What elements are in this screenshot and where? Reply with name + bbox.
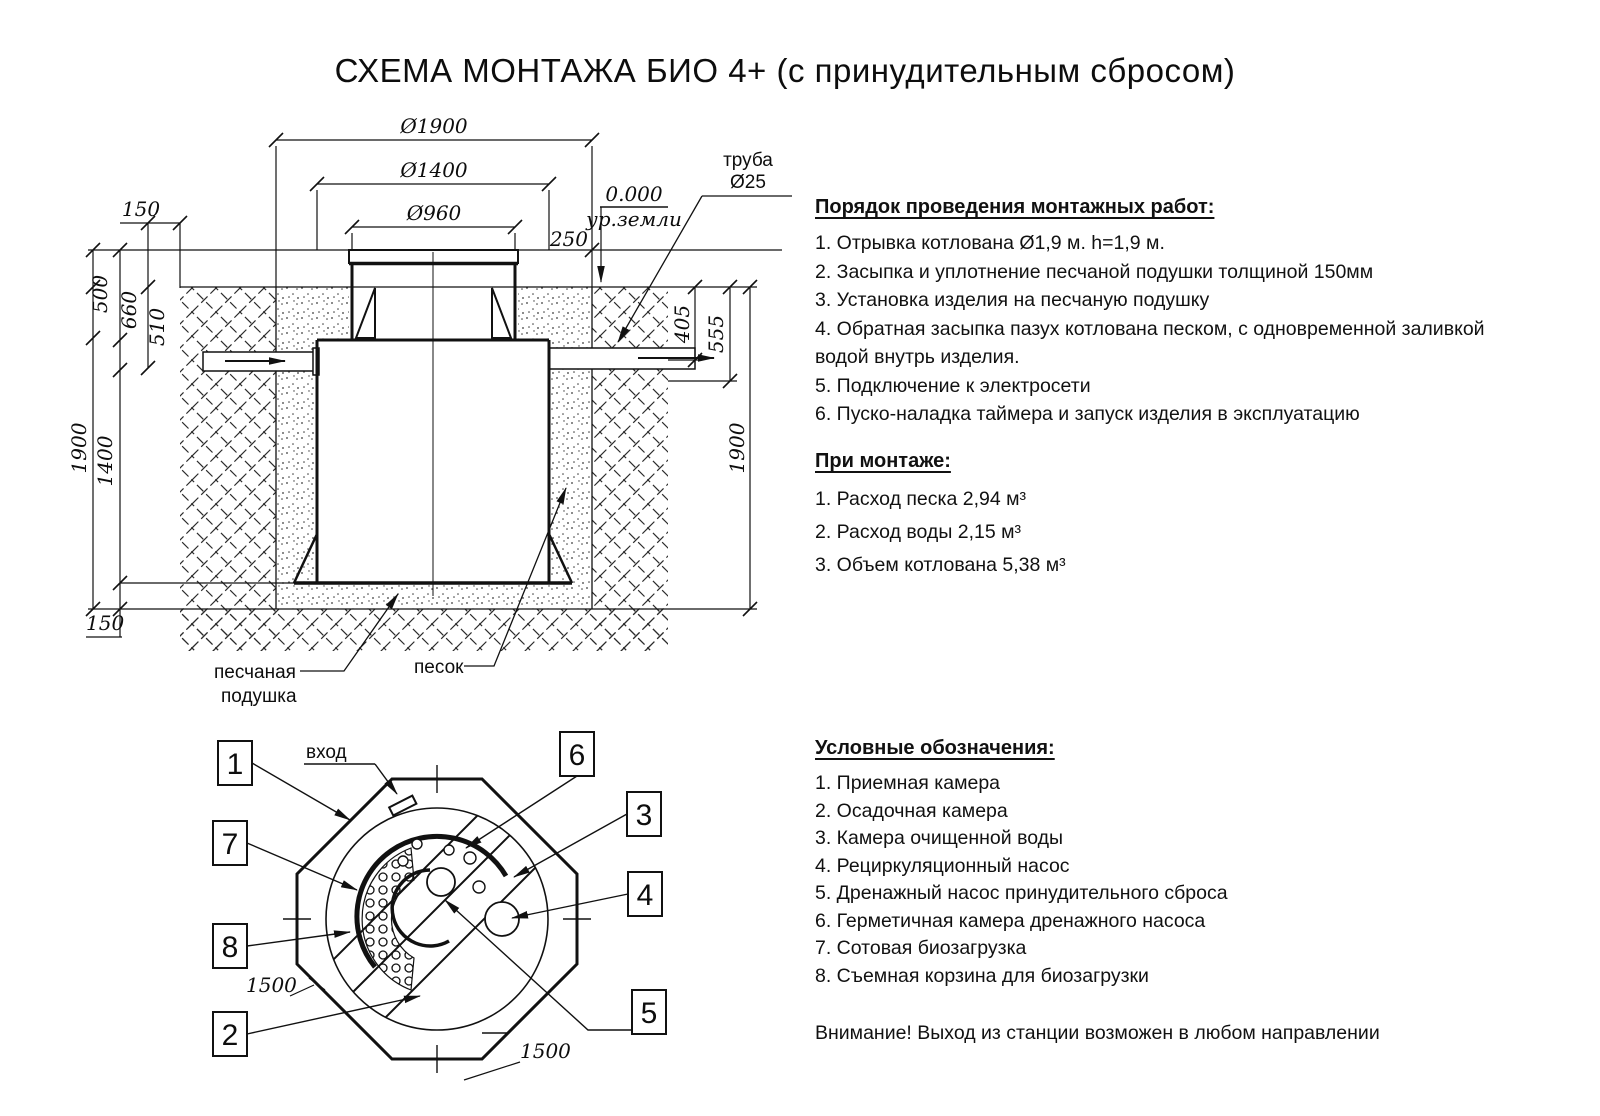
ground-level-label: ур.земли bbox=[585, 207, 682, 231]
procedure-section: Порядок проведения монтажных работ: 1. О… bbox=[815, 196, 1510, 429]
dim-250: 250 bbox=[549, 227, 588, 251]
callout-6-number: 6 bbox=[569, 739, 586, 772]
level-zero-label: 0.000 bbox=[605, 182, 663, 206]
sand-cushion-label-line1: песчаная bbox=[214, 662, 296, 683]
ground-level-marker: 0.000 ур.земли bbox=[585, 182, 682, 282]
legend-item: 1. Приемная камера bbox=[815, 770, 1510, 798]
procedure-item: 2. Засыпка и уплотнение песчаной подушки… bbox=[815, 258, 1510, 287]
callout-4: 4 bbox=[628, 872, 662, 916]
callout-7: 7 bbox=[213, 821, 247, 865]
callout-1-number: 1 bbox=[227, 748, 244, 781]
callout-5-number: 5 bbox=[641, 997, 658, 1030]
sand-cushion-label-line2: подушка bbox=[221, 686, 297, 707]
dim-150-top: 150 bbox=[122, 197, 160, 221]
callout-3-number: 3 bbox=[636, 799, 653, 832]
dim-405: 405 bbox=[670, 305, 694, 344]
dim-660: 660 bbox=[117, 291, 141, 329]
dim-d1400: Ø1400 bbox=[399, 158, 468, 182]
legend-item: 5. Дренажный насос принудительного сброс… bbox=[815, 880, 1510, 908]
installation-heading: При монтаже: bbox=[815, 450, 1510, 473]
dim-1400-left: 1400 bbox=[93, 435, 117, 486]
installation-section: При монтаже: 1. Расход песка 2,94 м³ 2. … bbox=[815, 450, 1510, 582]
installation-item: 3. Объем котлована 5,38 м³ bbox=[815, 549, 1510, 582]
dim-555: 555 bbox=[704, 315, 728, 353]
legend-section: Условные обозначения: 1. Приемная камера… bbox=[815, 737, 1510, 990]
inlet-label-text: вход bbox=[306, 742, 347, 763]
legend-heading: Условные обозначения: bbox=[815, 737, 1510, 760]
dim-1900-left: 1900 bbox=[67, 422, 91, 473]
callout-5: 5 bbox=[632, 990, 666, 1034]
callout-1: 1 bbox=[218, 741, 252, 785]
dim-1500-left: 1500 bbox=[246, 973, 297, 997]
dim-510: 510 bbox=[145, 308, 169, 346]
pipe-label-line2: Ø25 bbox=[730, 172, 766, 193]
procedure-item: 6. Пуско-наладка таймера и запуск издели… bbox=[815, 400, 1510, 429]
tank-octagon-outline bbox=[297, 779, 577, 1059]
callout-7-number: 7 bbox=[222, 828, 239, 861]
legend-item: 8. Съемная корзина для биозагрузки bbox=[815, 963, 1510, 991]
procedure-item: 1. Отрывка котлована Ø1,9 м. h=1,9 м. bbox=[815, 229, 1510, 258]
procedure-item: 4. Обратная засыпка пазух котлована песк… bbox=[815, 315, 1510, 372]
dim-1500-bottom: 1500 bbox=[520, 1039, 571, 1063]
callout-8: 8 bbox=[213, 924, 247, 968]
inlet-pipe bbox=[203, 348, 319, 375]
callout-6: 6 bbox=[560, 732, 594, 776]
callout-2-number: 2 bbox=[222, 1019, 239, 1052]
technical-drawing: Ø1900 Ø1400 Ø960 150 250 500 660 510 190… bbox=[0, 0, 800, 1116]
sand-label-text: песок bbox=[414, 657, 464, 678]
callout-4-number: 4 bbox=[637, 879, 654, 912]
cross-section-view: Ø1900 Ø1400 Ø960 150 250 500 660 510 190… bbox=[67, 114, 792, 707]
procedure-item: 5. Подключение к электросети bbox=[815, 372, 1510, 401]
dim-500: 500 bbox=[88, 275, 112, 313]
page: СХЕМА МОНТАЖА БИО 4+ (с принудительным с… bbox=[0, 0, 1600, 1116]
recirculation-pump-circle bbox=[485, 902, 519, 936]
legend-item: 6. Герметичная камера дренажного насоса bbox=[815, 908, 1510, 936]
dim-d960: Ø960 bbox=[406, 201, 462, 225]
callout-8-number: 8 bbox=[222, 931, 239, 964]
drainage-pump-circle bbox=[427, 868, 455, 896]
installation-item: 1. Расход песка 2,94 м³ bbox=[815, 483, 1510, 516]
legend-item: 3. Камера очищенной воды bbox=[815, 825, 1510, 853]
callout-2: 2 bbox=[213, 1012, 247, 1056]
dim-150-bottom: 150 bbox=[86, 611, 124, 635]
dim-d1900: Ø1900 bbox=[399, 114, 468, 138]
warning-note: Внимание! Выход из станции возможен в лю… bbox=[815, 1022, 1380, 1045]
top-view: вход 1500 1500 bbox=[213, 732, 666, 1080]
installation-item: 2. Расход воды 2,15 м³ bbox=[815, 516, 1510, 549]
dim-1900-right: 1900 bbox=[725, 422, 749, 473]
procedure-item: 3. Установка изделия на песчаную подушку bbox=[815, 286, 1510, 315]
legend-item: 7. Сотовая биозагрузка bbox=[815, 935, 1510, 963]
legend-item: 2. Осадочная камера bbox=[815, 798, 1510, 826]
dim-1500-bottom-line bbox=[464, 1062, 520, 1080]
callout-3: 3 bbox=[627, 792, 661, 836]
pipe-label-line1: труба bbox=[723, 150, 773, 171]
procedure-heading: Порядок проведения монтажных работ: bbox=[815, 196, 1510, 219]
legend-item: 4. Рециркуляционный насос bbox=[815, 853, 1510, 881]
